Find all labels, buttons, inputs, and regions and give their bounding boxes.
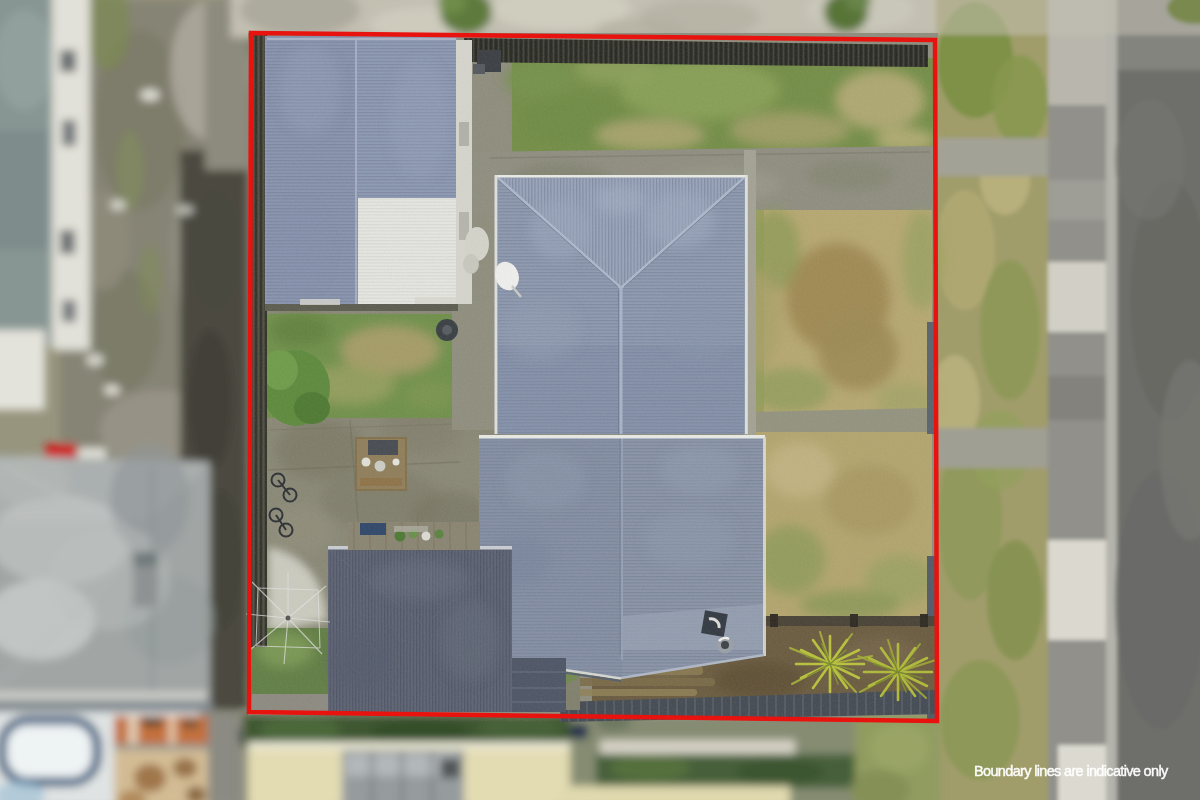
svg-text:Boundary lines are indicative: Boundary lines are indicative only [974,763,1169,779]
